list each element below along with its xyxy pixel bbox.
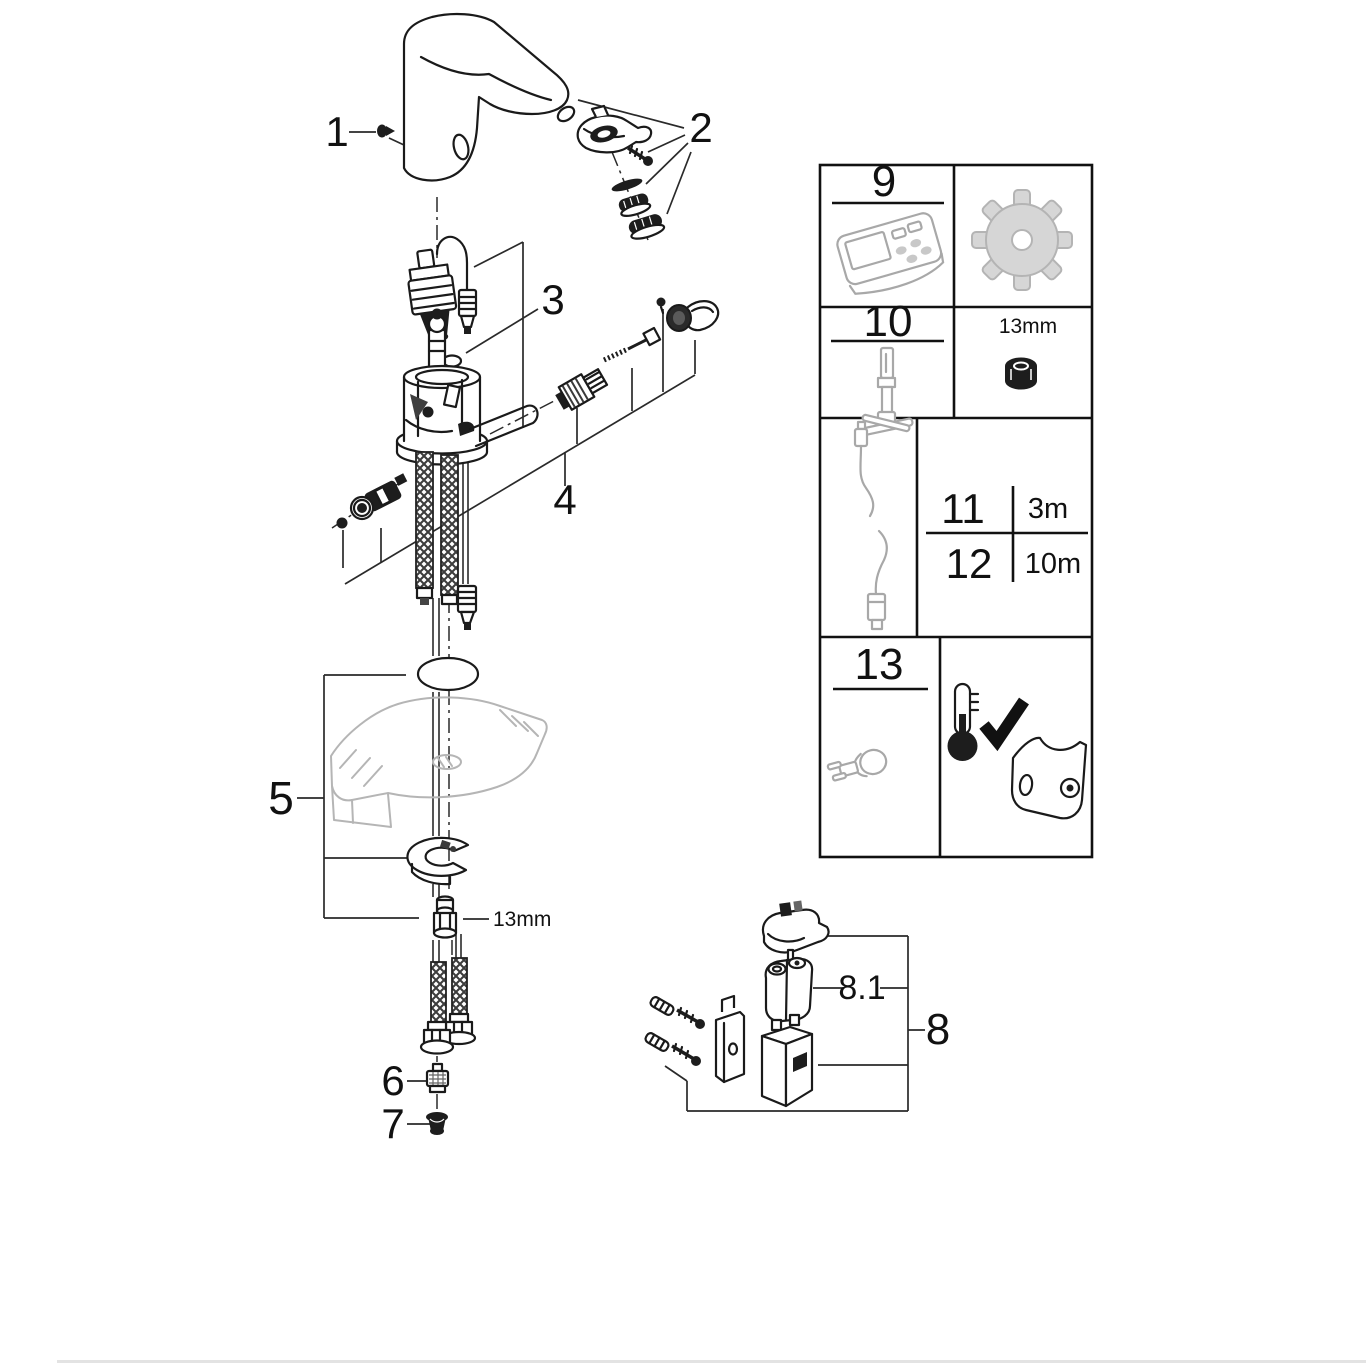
mounting-nut	[434, 897, 456, 938]
hex-nut-icon	[1005, 358, 1037, 390]
battery-housing	[762, 1015, 812, 1106]
wall-screws	[644, 996, 705, 1066]
battery-pack	[766, 958, 812, 1021]
gear-icon	[972, 190, 1072, 290]
aerator-screw	[628, 146, 653, 166]
fixing-plug-icon	[827, 747, 889, 785]
parts-diagram: 1 2 3 4 5 6 7 8 8.1 13mm 9 10 13mm 11 3m…	[0, 0, 1366, 1366]
valve-body	[397, 366, 487, 465]
base-o-ring	[418, 658, 478, 690]
callout-2: 2	[689, 104, 712, 151]
aerator-insert-2	[627, 212, 665, 241]
wrench-size-label: 13mm	[493, 908, 551, 931]
aerator-insert-1	[617, 192, 651, 218]
valve-stem	[429, 309, 445, 375]
remote-control-icon	[835, 211, 947, 299]
cable-connector	[459, 290, 476, 334]
page-footer-rule	[57, 1360, 1366, 1363]
battery-box-group	[644, 900, 828, 1106]
panel-number-10: 10	[864, 297, 913, 346]
panel-number-12: 12	[946, 540, 993, 587]
check-valve-screw	[337, 518, 348, 529]
callout-8-1: 8.1	[838, 969, 885, 1007]
callout-3: 3	[541, 276, 564, 323]
extension-cable-icon	[855, 422, 887, 629]
callout-8: 8	[926, 1005, 950, 1054]
callout-4: 4	[553, 476, 576, 523]
lever-handle	[667, 301, 718, 331]
panel-number-13: 13	[855, 640, 904, 689]
callout-6: 6	[381, 1057, 404, 1104]
panel-wrench-size: 13mm	[999, 315, 1057, 338]
callout-5: 5	[268, 772, 294, 824]
connection-fitting	[553, 366, 609, 414]
panel-number-9: 9	[872, 157, 896, 206]
mounting-clamp	[407, 838, 468, 884]
lever-screw	[604, 298, 666, 361]
aerator-gasket	[610, 176, 643, 194]
callout-1: 1	[325, 108, 348, 155]
callout-7: 7	[381, 1100, 404, 1147]
supply-hoses-lower	[421, 958, 475, 1054]
supply-hoses-upper	[416, 452, 476, 630]
mounting-plate-icon	[1012, 738, 1086, 818]
wall-bracket	[716, 996, 744, 1082]
callout-leader-lines	[297, 100, 925, 1124]
panel-number-11: 11	[941, 485, 985, 532]
panel-length-10m: 10m	[1025, 548, 1081, 580]
cartridge-assembly	[337, 298, 719, 529]
aerator-assembly	[555, 104, 665, 242]
adapter-part6	[427, 1064, 448, 1092]
panel-length-3m: 3m	[1028, 493, 1068, 525]
sensor-cable-plug	[458, 586, 476, 630]
exploded-parts-diagram-page: 1 2 3 4 5 6 7 8 8.1 13mm 9 10 13mm 11 3m…	[0, 0, 1366, 1366]
set-screw-part1	[377, 125, 395, 138]
center-lines	[332, 152, 648, 1110]
faucet-spout-body	[404, 14, 568, 180]
thermal-disinfection-check-icon	[948, 684, 1025, 761]
labels: 1 2 3 4 5 6 7 8 8.1 13mm 9 10 13mm 11 3m…	[268, 104, 1081, 1147]
check-valve	[337, 473, 408, 528]
aerator-holder	[578, 106, 651, 152]
